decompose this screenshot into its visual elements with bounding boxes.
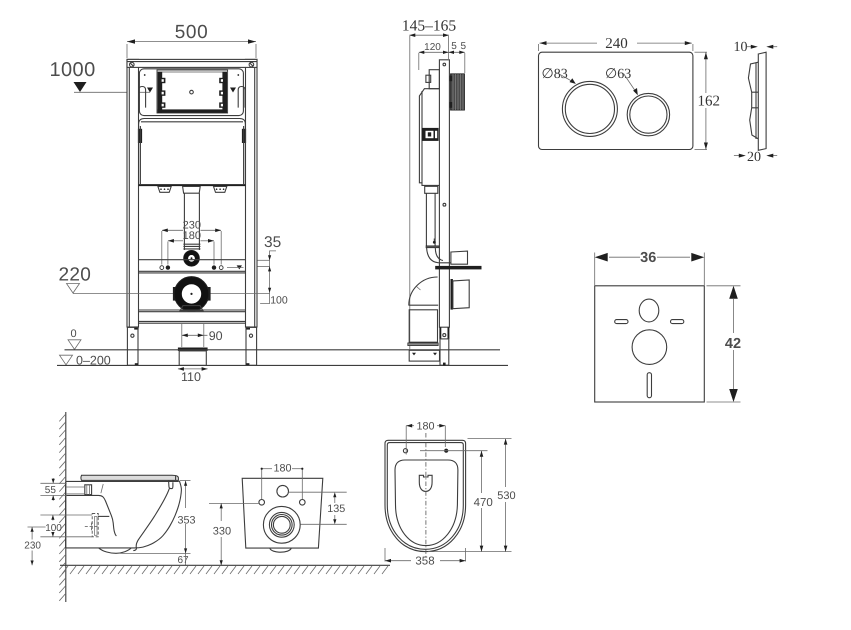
svg-text:67: 67 bbox=[178, 555, 190, 566]
svg-text:36: 36 bbox=[640, 250, 656, 266]
svg-text:180: 180 bbox=[183, 230, 201, 242]
svg-text:135: 135 bbox=[327, 503, 345, 515]
svg-text:120: 120 bbox=[424, 42, 441, 53]
svg-text:0: 0 bbox=[71, 328, 77, 340]
svg-text:55: 55 bbox=[451, 41, 469, 52]
svg-text:20: 20 bbox=[747, 150, 761, 165]
svg-text:470: 470 bbox=[474, 497, 493, 509]
svg-text:55: 55 bbox=[45, 485, 57, 496]
svg-text:353: 353 bbox=[178, 515, 196, 527]
svg-text:145–165: 145–165 bbox=[402, 18, 457, 35]
svg-text:162: 162 bbox=[698, 94, 721, 110]
svg-text:358: 358 bbox=[415, 556, 434, 568]
svg-text:180: 180 bbox=[416, 420, 434, 432]
svg-text:220: 220 bbox=[59, 265, 92, 286]
svg-text:35: 35 bbox=[264, 234, 281, 251]
svg-text:100: 100 bbox=[270, 295, 288, 307]
svg-text:10: 10 bbox=[734, 40, 748, 55]
svg-text:110: 110 bbox=[181, 370, 201, 384]
svg-text:180: 180 bbox=[273, 463, 291, 475]
svg-text:∅83: ∅83 bbox=[542, 67, 568, 82]
svg-text:1000: 1000 bbox=[50, 59, 96, 81]
svg-text:90: 90 bbox=[209, 329, 223, 343]
svg-text:530: 530 bbox=[497, 490, 515, 502]
svg-text:240: 240 bbox=[605, 36, 628, 52]
svg-text:500: 500 bbox=[175, 22, 209, 43]
svg-text:330: 330 bbox=[213, 525, 231, 537]
svg-text:42: 42 bbox=[725, 336, 741, 352]
svg-text:230: 230 bbox=[24, 540, 41, 551]
